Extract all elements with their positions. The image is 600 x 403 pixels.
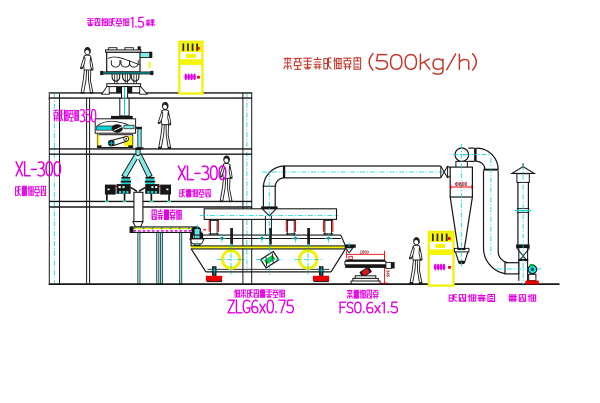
svg-text:Φ800: Φ800	[455, 182, 468, 188]
svg-text:345: 345	[386, 270, 391, 278]
svg-text:1500: 1500	[360, 249, 370, 254]
